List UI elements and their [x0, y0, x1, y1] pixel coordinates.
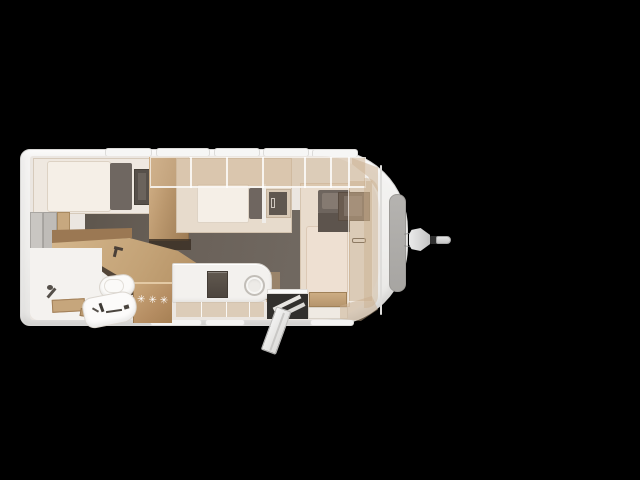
- cabinet-divider: [226, 302, 227, 317]
- cooktop: [207, 271, 228, 298]
- locker-divider: [190, 157, 192, 188]
- heater-marking: ✳✳✳: [135, 293, 174, 309]
- locker-divider: [262, 157, 264, 188]
- kitchen-base-cabinets: [176, 302, 264, 317]
- locker-divider: [330, 157, 332, 188]
- overhead-lockers: [150, 157, 366, 188]
- left-cabinet-door: [30, 212, 43, 250]
- rear-bed-pillow: [110, 163, 132, 210]
- front-bed-mattress: [306, 226, 348, 294]
- cabinet-divider: [201, 302, 202, 317]
- entry-threshold: [267, 289, 308, 294]
- rear-bed-headboard-inset: [138, 173, 146, 200]
- cabinet-divider: [249, 302, 250, 317]
- front-window: [389, 194, 406, 292]
- sidewall-segment: [310, 319, 354, 326]
- front-cap-seam: [380, 165, 382, 315]
- hitch-coupler: [436, 236, 451, 244]
- middle-bed-pillow: [249, 188, 263, 219]
- rear-bed-mattress: [47, 161, 111, 212]
- front-wall-strip: [364, 178, 378, 308]
- locker-divider: [226, 157, 228, 188]
- round-sink: [244, 275, 265, 296]
- front-bed-drawer: [309, 292, 347, 307]
- middle-bed-mattress: [197, 184, 249, 223]
- locker-divider: [304, 157, 306, 188]
- sidewall-segment: [205, 319, 245, 326]
- floorplan-canvas: ✳✳✳: [0, 0, 640, 480]
- shower-fitting-icon: [47, 285, 53, 290]
- hitch-housing: [409, 228, 430, 251]
- locker-divider: [348, 157, 350, 188]
- middle-bed-panel-handle: [271, 198, 275, 208]
